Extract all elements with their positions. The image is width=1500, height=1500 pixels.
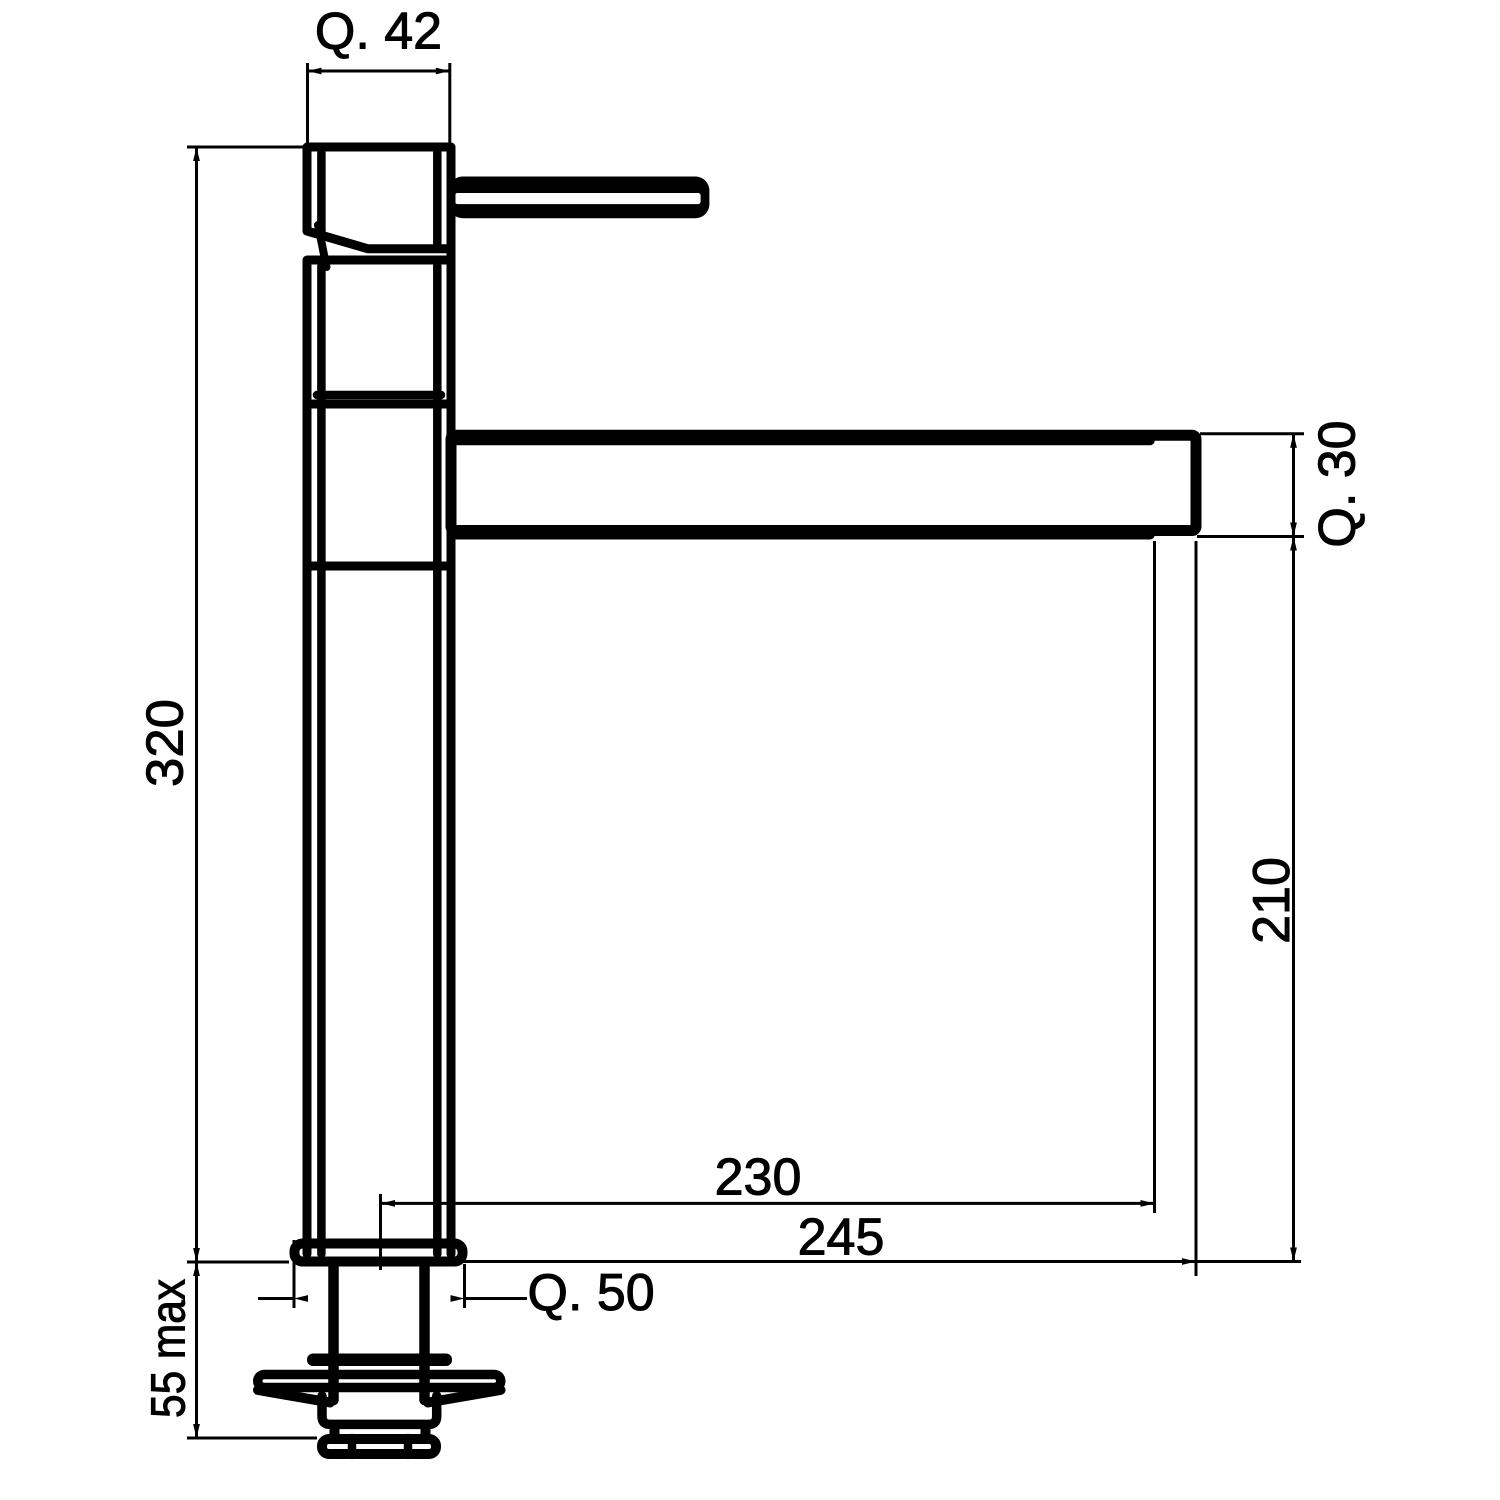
svg-text:Q. 50: Q. 50 — [528, 1264, 655, 1322]
svg-text:Q. 30: Q. 30 — [1309, 420, 1367, 547]
svg-text:230: 230 — [715, 1149, 802, 1207]
svg-text:320: 320 — [137, 699, 195, 787]
svg-text:55 max: 55 max — [143, 1279, 196, 1418]
svg-text:210: 210 — [1243, 857, 1301, 944]
svg-text:245: 245 — [798, 1209, 885, 1267]
svg-text:Q. 42: Q. 42 — [315, 3, 442, 61]
